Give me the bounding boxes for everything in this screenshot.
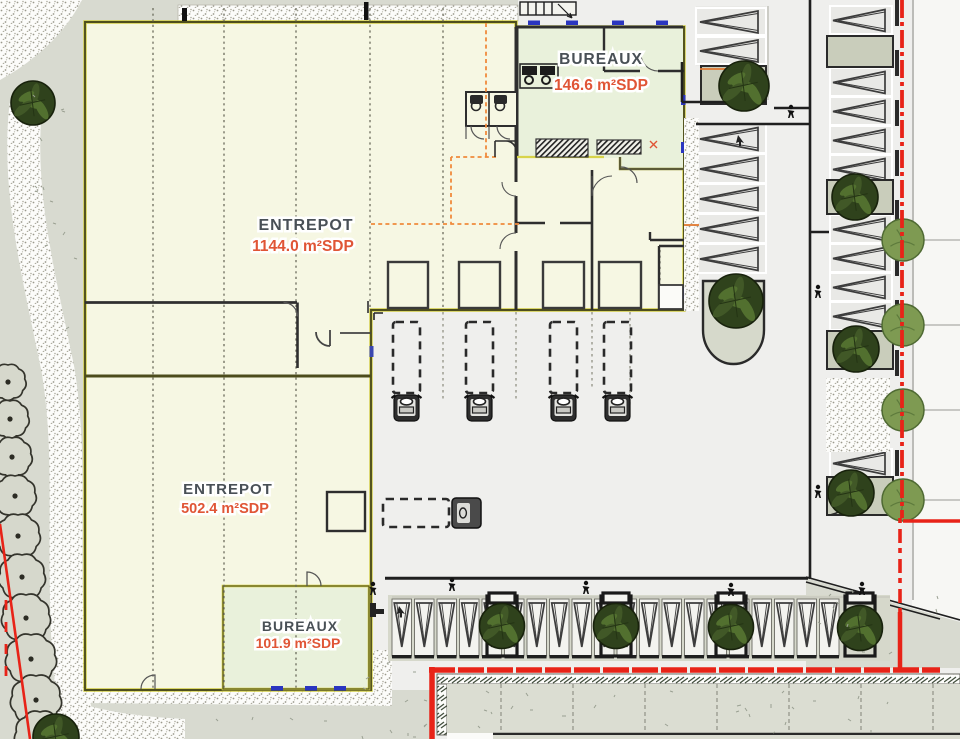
svg-text:146.6 m²SDP: 146.6 m²SDP	[554, 77, 648, 94]
svg-text:BUREAUX: BUREAUX	[559, 51, 643, 68]
svg-text:ENTREPOT: ENTREPOT	[258, 217, 353, 234]
svg-text:502.4 m²SDP: 502.4 m²SDP	[181, 501, 269, 517]
svg-text:101.9 m²SDP: 101.9 m²SDP	[256, 635, 341, 651]
svg-text:ENTREPOT: ENTREPOT	[183, 481, 273, 498]
svg-text:1144.0 m²SDP: 1144.0 m²SDP	[252, 238, 354, 255]
svg-text:BUREAUX: BUREAUX	[262, 618, 338, 634]
